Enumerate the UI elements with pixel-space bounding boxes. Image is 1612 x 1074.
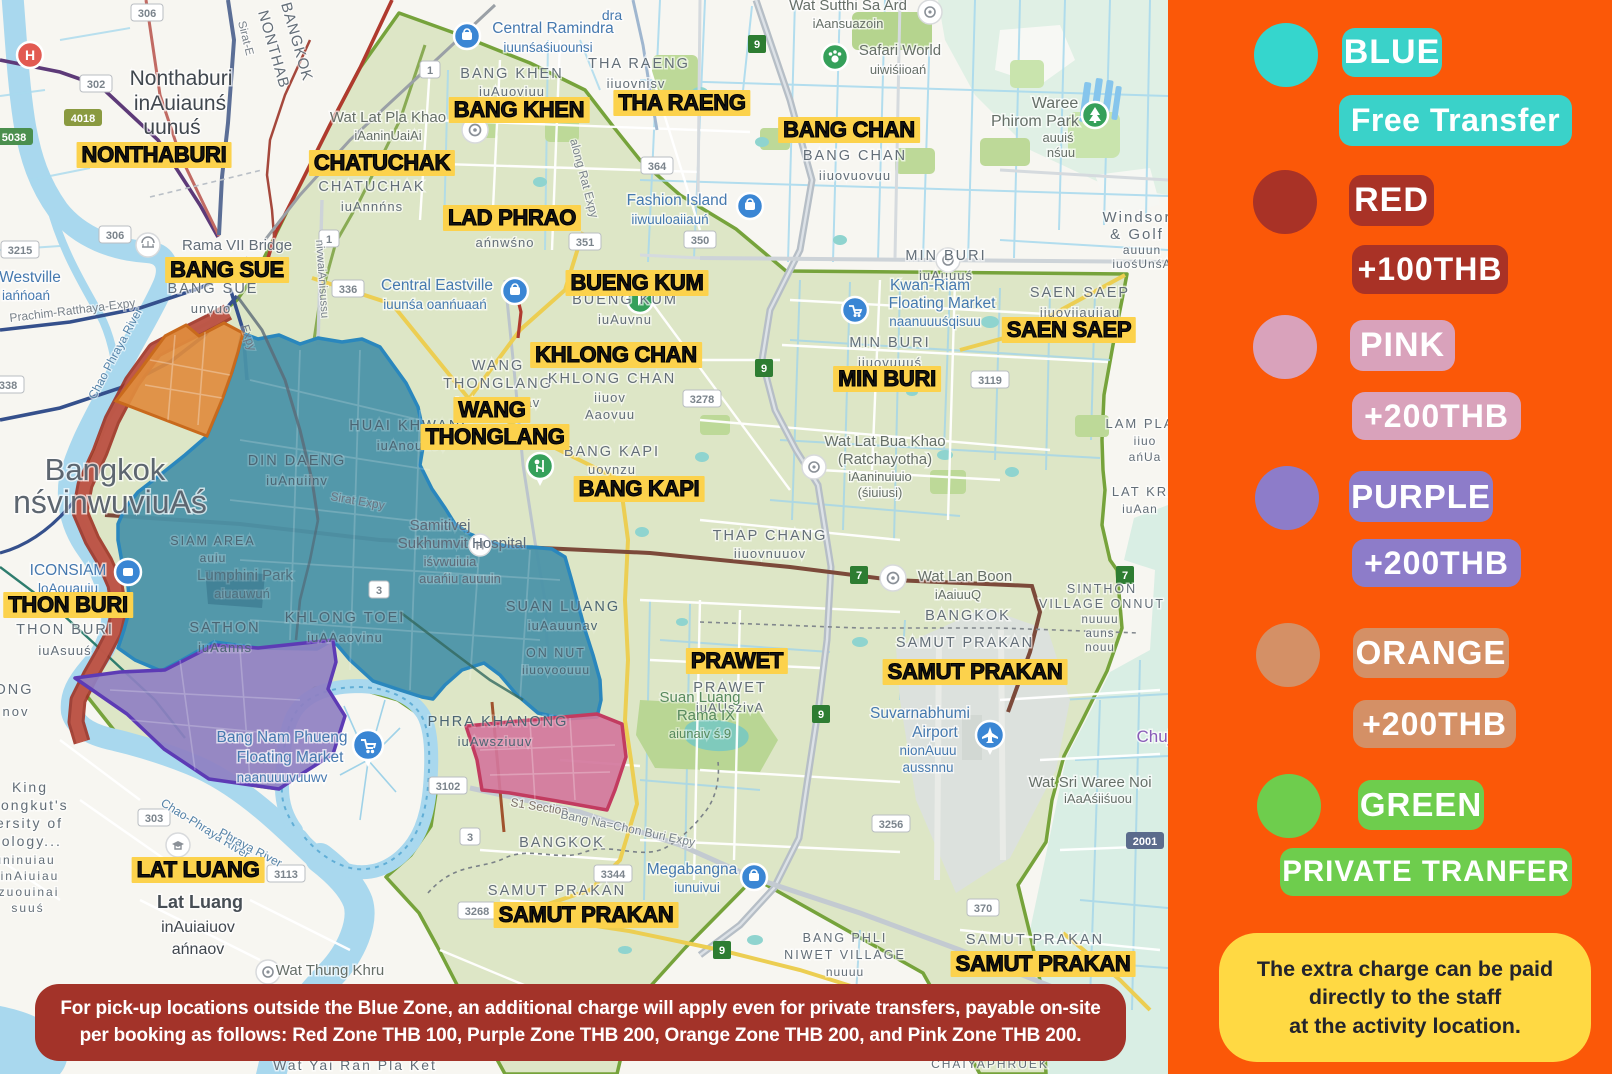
svg-text:MIN BURI: MIN BURI: [905, 248, 986, 264]
svg-text:uunuś: uunuś: [143, 116, 200, 139]
svg-text:3256: 3256: [879, 819, 903, 831]
svg-text:nionAuuu: nionAuuu: [899, 743, 956, 758]
svg-text:versity of: versity of: [0, 815, 63, 831]
svg-text:Sukhumvit Hospital: Sukhumvit Hospital: [398, 535, 526, 552]
svg-text:Wat Thung Khru: Wat Thung Khru: [276, 962, 384, 979]
svg-text:BANG PHLI: BANG PHLI: [803, 931, 888, 945]
svg-text:THA RAENG: THA RAENG: [588, 56, 690, 72]
svg-text:iuAuvnu: iuAuvnu: [598, 312, 652, 327]
svg-text:iAaninuiuio: iAaninuiuio: [848, 469, 912, 484]
svg-text:iiuov: iiuov: [594, 390, 626, 405]
svg-text:ICONSIAM: ICONSIAM: [30, 562, 107, 579]
svg-text:Lumphini Park: Lumphini Park: [197, 567, 293, 584]
svg-text:Mongkut's: Mongkut's: [0, 797, 69, 813]
svg-text:uovnzu: uovnzu: [588, 462, 636, 477]
svg-text:SAMUT PRAKAN: SAMUT PRAKAN: [896, 635, 1034, 651]
svg-text:auns: auns: [1086, 628, 1115, 640]
svg-text:3: 3: [467, 832, 473, 844]
svg-text:LAT KR: LAT KR: [1112, 484, 1168, 499]
svg-text:ańnwśno: ańnwśno: [475, 235, 534, 250]
svg-text:auuun: auuun: [1123, 243, 1161, 257]
svg-text:3268: 3268: [465, 906, 489, 918]
svg-text:KHLONG TOEI: KHLONG TOEI: [285, 610, 406, 626]
svg-text:WANG: WANG: [472, 358, 525, 374]
svg-text:iuAauunav: iuAauunav: [528, 618, 598, 633]
svg-text:SIAM AREA: SIAM AREA: [170, 534, 255, 548]
svg-text:364: 364: [648, 161, 667, 173]
svg-text:THON BURI: THON BURI: [16, 622, 114, 638]
svg-text:BANG CHAN: BANG CHAN: [803, 148, 907, 164]
svg-text:Westville: Westville: [0, 269, 61, 286]
svg-text:306: 306: [138, 8, 156, 20]
svg-text:hnology...: hnology...: [0, 833, 62, 849]
svg-text:inAiuiau: inAiuiau: [1, 869, 60, 883]
svg-text:H: H: [25, 47, 35, 63]
svg-text:nśvinwuviuAś: nśvinwuviuAś: [13, 484, 207, 520]
svg-text:9: 9: [754, 39, 760, 51]
svg-text:uninuiau: uninuiau: [0, 853, 56, 867]
svg-text:& Golf: & Golf: [1110, 226, 1164, 243]
svg-text:BANGKOK: BANGKOK: [519, 835, 605, 851]
svg-text:King: King: [12, 779, 48, 795]
svg-text:BANG KHEN: BANG KHEN: [460, 66, 563, 82]
svg-text:iiuo: iiuo: [1134, 434, 1157, 448]
svg-text:BANG SUE: BANG SUE: [168, 281, 259, 297]
svg-text:7: 7: [1122, 570, 1128, 582]
svg-text:9: 9: [761, 363, 767, 375]
svg-text:auiu: auiu: [200, 551, 227, 565]
svg-text:Aaovuu: Aaovuu: [585, 407, 635, 422]
svg-text:THONGLANG: THONGLANG: [443, 376, 553, 392]
svg-text:Wat Sri Waree Noi: Wat Sri Waree Noi: [1028, 774, 1151, 791]
svg-text:ONG: ONG: [0, 682, 34, 698]
svg-text:nouu: nouu: [1085, 642, 1115, 654]
svg-text:iuAanns: iuAanns: [198, 640, 252, 655]
svg-text:Phirom Park: Phirom Park: [991, 113, 1080, 130]
svg-text:iuAnnńns: iuAnnńns: [341, 199, 403, 214]
svg-text:iuunśaśiuounsi: iuunśaśiuounsi: [503, 40, 592, 55]
svg-text:Rama VII Bridge: Rama VII Bridge: [182, 237, 292, 254]
svg-text:Windsor: Windsor: [1102, 209, 1168, 226]
svg-text:Samitivej: Samitivej: [410, 517, 471, 534]
svg-text:nuuuu: nuuuu: [826, 965, 864, 979]
svg-text:Floating Market: Floating Market: [237, 749, 345, 766]
svg-text:iiuovnisv: iiuovnisv: [607, 76, 666, 91]
svg-text:Waree: Waree: [1032, 95, 1079, 112]
svg-text:370: 370: [974, 903, 992, 915]
svg-text:ON NUT: ON NUT: [526, 646, 586, 660]
svg-text:Fashion Island: Fashion Island: [627, 192, 728, 209]
svg-text:SAMUT PRAKAN: SAMUT PRAKAN: [966, 932, 1104, 948]
svg-text:ańnaov: ańnaov: [172, 941, 225, 958]
svg-text:iAansuazoin: iAansuazoin: [813, 16, 884, 31]
svg-text:Rama IX: Rama IX: [677, 707, 735, 724]
svg-text:nov: nov: [3, 704, 30, 719]
svg-text:iiuovuovuu: iiuovuovuu: [819, 168, 891, 183]
svg-text:3102: 3102: [436, 781, 460, 793]
svg-text:nśuu: nśuu: [1047, 145, 1075, 160]
svg-text:naanuuuvuuwv: naanuuuvuuwv: [237, 770, 328, 785]
svg-text:Bang Nam Phueng: Bang Nam Phueng: [217, 729, 348, 746]
svg-text:KHLONG CHAN: KHLONG CHAN: [548, 371, 676, 387]
svg-text:2001: 2001: [1133, 836, 1157, 848]
svg-text:Wat Lat Bua Khao: Wat Lat Bua Khao: [824, 433, 945, 450]
svg-text:iuunśa oanńuaań: iuunśa oanńuaań: [383, 297, 487, 312]
svg-text:351: 351: [576, 237, 594, 249]
svg-text:Central Ramindra: Central Ramindra: [492, 20, 614, 37]
svg-text:338: 338: [0, 380, 17, 392]
svg-text:Bangkok: Bangkok: [45, 452, 166, 487]
svg-text:iuośUnśA: iuośUnśA: [1112, 257, 1168, 271]
svg-text:1: 1: [326, 234, 332, 246]
svg-text:suuś: suuś: [11, 901, 44, 915]
svg-text:350: 350: [691, 235, 709, 247]
svg-text:iAaninUaiAi: iAaninUaiAi: [354, 128, 421, 143]
svg-text:THAP CHANG: THAP CHANG: [713, 528, 828, 544]
svg-text:inAuiaiuov: inAuiaiuov: [161, 919, 235, 936]
svg-text:Floating Market: Floating Market: [889, 295, 997, 312]
svg-text:(Ratchayotha): (Ratchayotha): [838, 451, 932, 468]
svg-text:iAaiuuQ: iAaiuuQ: [935, 587, 981, 602]
svg-text:Megabangna: Megabangna: [647, 861, 738, 878]
svg-text:iiuovnuuov: iiuovnuuov: [734, 546, 806, 561]
svg-text:PHRA KHANONG: PHRA KHANONG: [428, 714, 569, 730]
svg-text:4018: 4018: [71, 113, 95, 125]
svg-text:CHATUCHAK: CHATUCHAK: [318, 179, 425, 195]
svg-text:Safari World: Safari World: [859, 42, 941, 59]
svg-text:Suvarnabhumi: Suvarnabhumi: [870, 705, 970, 722]
svg-text:3113: 3113: [274, 869, 298, 881]
svg-text:dra: dra: [602, 7, 622, 23]
svg-text:BANGKOK: BANGKOK: [925, 608, 1011, 624]
svg-text:Suan Luang: Suan Luang: [660, 689, 741, 706]
svg-text:Kwan-Riam: Kwan-Riam: [890, 277, 970, 294]
svg-text:(śiuiusi): (śiuiusi): [858, 485, 903, 500]
svg-text:3119: 3119: [978, 375, 1002, 387]
svg-text:Wat Sutthi Sa Ard: Wat Sutthi Sa Ard: [789, 0, 907, 14]
svg-text:aiuauwuń: aiuauwuń: [214, 586, 270, 601]
svg-text:LAM PLA: LAM PLA: [1106, 416, 1168, 431]
svg-text:auuiś: auuiś: [1042, 130, 1074, 145]
svg-text:MIN BURI: MIN BURI: [849, 335, 930, 351]
svg-text:7: 7: [856, 570, 862, 582]
svg-text:Wat Lan Boon: Wat Lan Boon: [918, 568, 1013, 585]
svg-text:SATHON: SATHON: [189, 620, 260, 636]
svg-text:3: 3: [376, 585, 382, 597]
svg-text:336: 336: [339, 284, 357, 296]
svg-text:ańUa: ańUa: [1129, 450, 1162, 464]
svg-text:iśvwuiuia: iśvwuiuia: [424, 554, 478, 569]
svg-text:Central Eastville: Central Eastville: [381, 277, 493, 294]
svg-text:iiwuuloaiiauń: iiwuuloaiiauń: [631, 212, 708, 227]
svg-text:iuAwsziuuv: iuAwsziuuv: [458, 734, 533, 749]
svg-text:iuAAaovinu: iuAAaovinu: [307, 630, 383, 645]
svg-text:1: 1: [427, 65, 433, 77]
svg-text:302: 302: [87, 79, 105, 91]
svg-text:iunuivui: iunuivui: [674, 880, 720, 895]
svg-text:Lat Luang: Lat Luang: [157, 892, 243, 912]
svg-text:szuouinai: szuouinai: [0, 885, 59, 899]
svg-text:NIWET VILLAGE: NIWET VILLAGE: [784, 948, 906, 962]
svg-text:3278: 3278: [690, 394, 714, 406]
svg-text:DIN DAENG: DIN DAENG: [248, 453, 347, 469]
svg-text:unvuo: unvuo: [191, 301, 231, 316]
svg-text:Airport: Airport: [912, 724, 958, 741]
svg-text:Nonthaburi: Nonthaburi: [130, 67, 233, 90]
svg-text:nuuuu: nuuuu: [1082, 614, 1119, 626]
svg-text:5038: 5038: [2, 132, 26, 144]
svg-text:aussnnu: aussnnu: [902, 760, 953, 775]
svg-text:iuAsuuś: iuAsuuś: [38, 643, 91, 658]
svg-text:9: 9: [719, 945, 725, 957]
svg-text:SAMUT PRAKAN: SAMUT PRAKAN: [488, 883, 626, 899]
svg-text:3344: 3344: [601, 869, 626, 881]
svg-text:SUAN LUANG: SUAN LUANG: [506, 599, 620, 615]
svg-text:uiwiśiioań: uiwiśiioań: [870, 62, 926, 77]
svg-text:iańńoań: iańńoań: [2, 288, 50, 303]
svg-text:303: 303: [145, 813, 163, 825]
svg-text:iAaAśiiśuou: iAaAśiiśuou: [1064, 791, 1132, 806]
svg-text:SAEN SAEP: SAEN SAEP: [1030, 285, 1130, 301]
svg-text:9: 9: [818, 709, 824, 721]
svg-text:naanuuuśqisuu: naanuuuśqisuu: [889, 314, 981, 329]
svg-text:iiuovoouuu: iiuovoouuu: [522, 663, 590, 677]
svg-text:aiunaiv ś.9: aiunaiv ś.9: [669, 726, 731, 741]
svg-text:SINTHON: SINTHON: [1067, 582, 1137, 596]
svg-text:3215: 3215: [8, 245, 32, 257]
svg-text:iuAan: iuAan: [1122, 502, 1158, 516]
svg-text:VILLAGE ONNUT: VILLAGE ONNUT: [1039, 597, 1165, 611]
svg-text:Chuj: Chuj: [1137, 727, 1168, 746]
svg-text:BANG KAPI: BANG KAPI: [564, 444, 660, 460]
svg-text:iuAnuiinv: iuAnuiinv: [266, 473, 328, 488]
svg-text:inAuiaunś: inAuiaunś: [134, 92, 226, 115]
svg-text:Wat Lat Pla Khao: Wat Lat Pla Khao: [330, 109, 446, 126]
svg-text:auańiu auuuin: auańiu auuuin: [419, 571, 501, 586]
svg-text:306: 306: [106, 230, 124, 242]
